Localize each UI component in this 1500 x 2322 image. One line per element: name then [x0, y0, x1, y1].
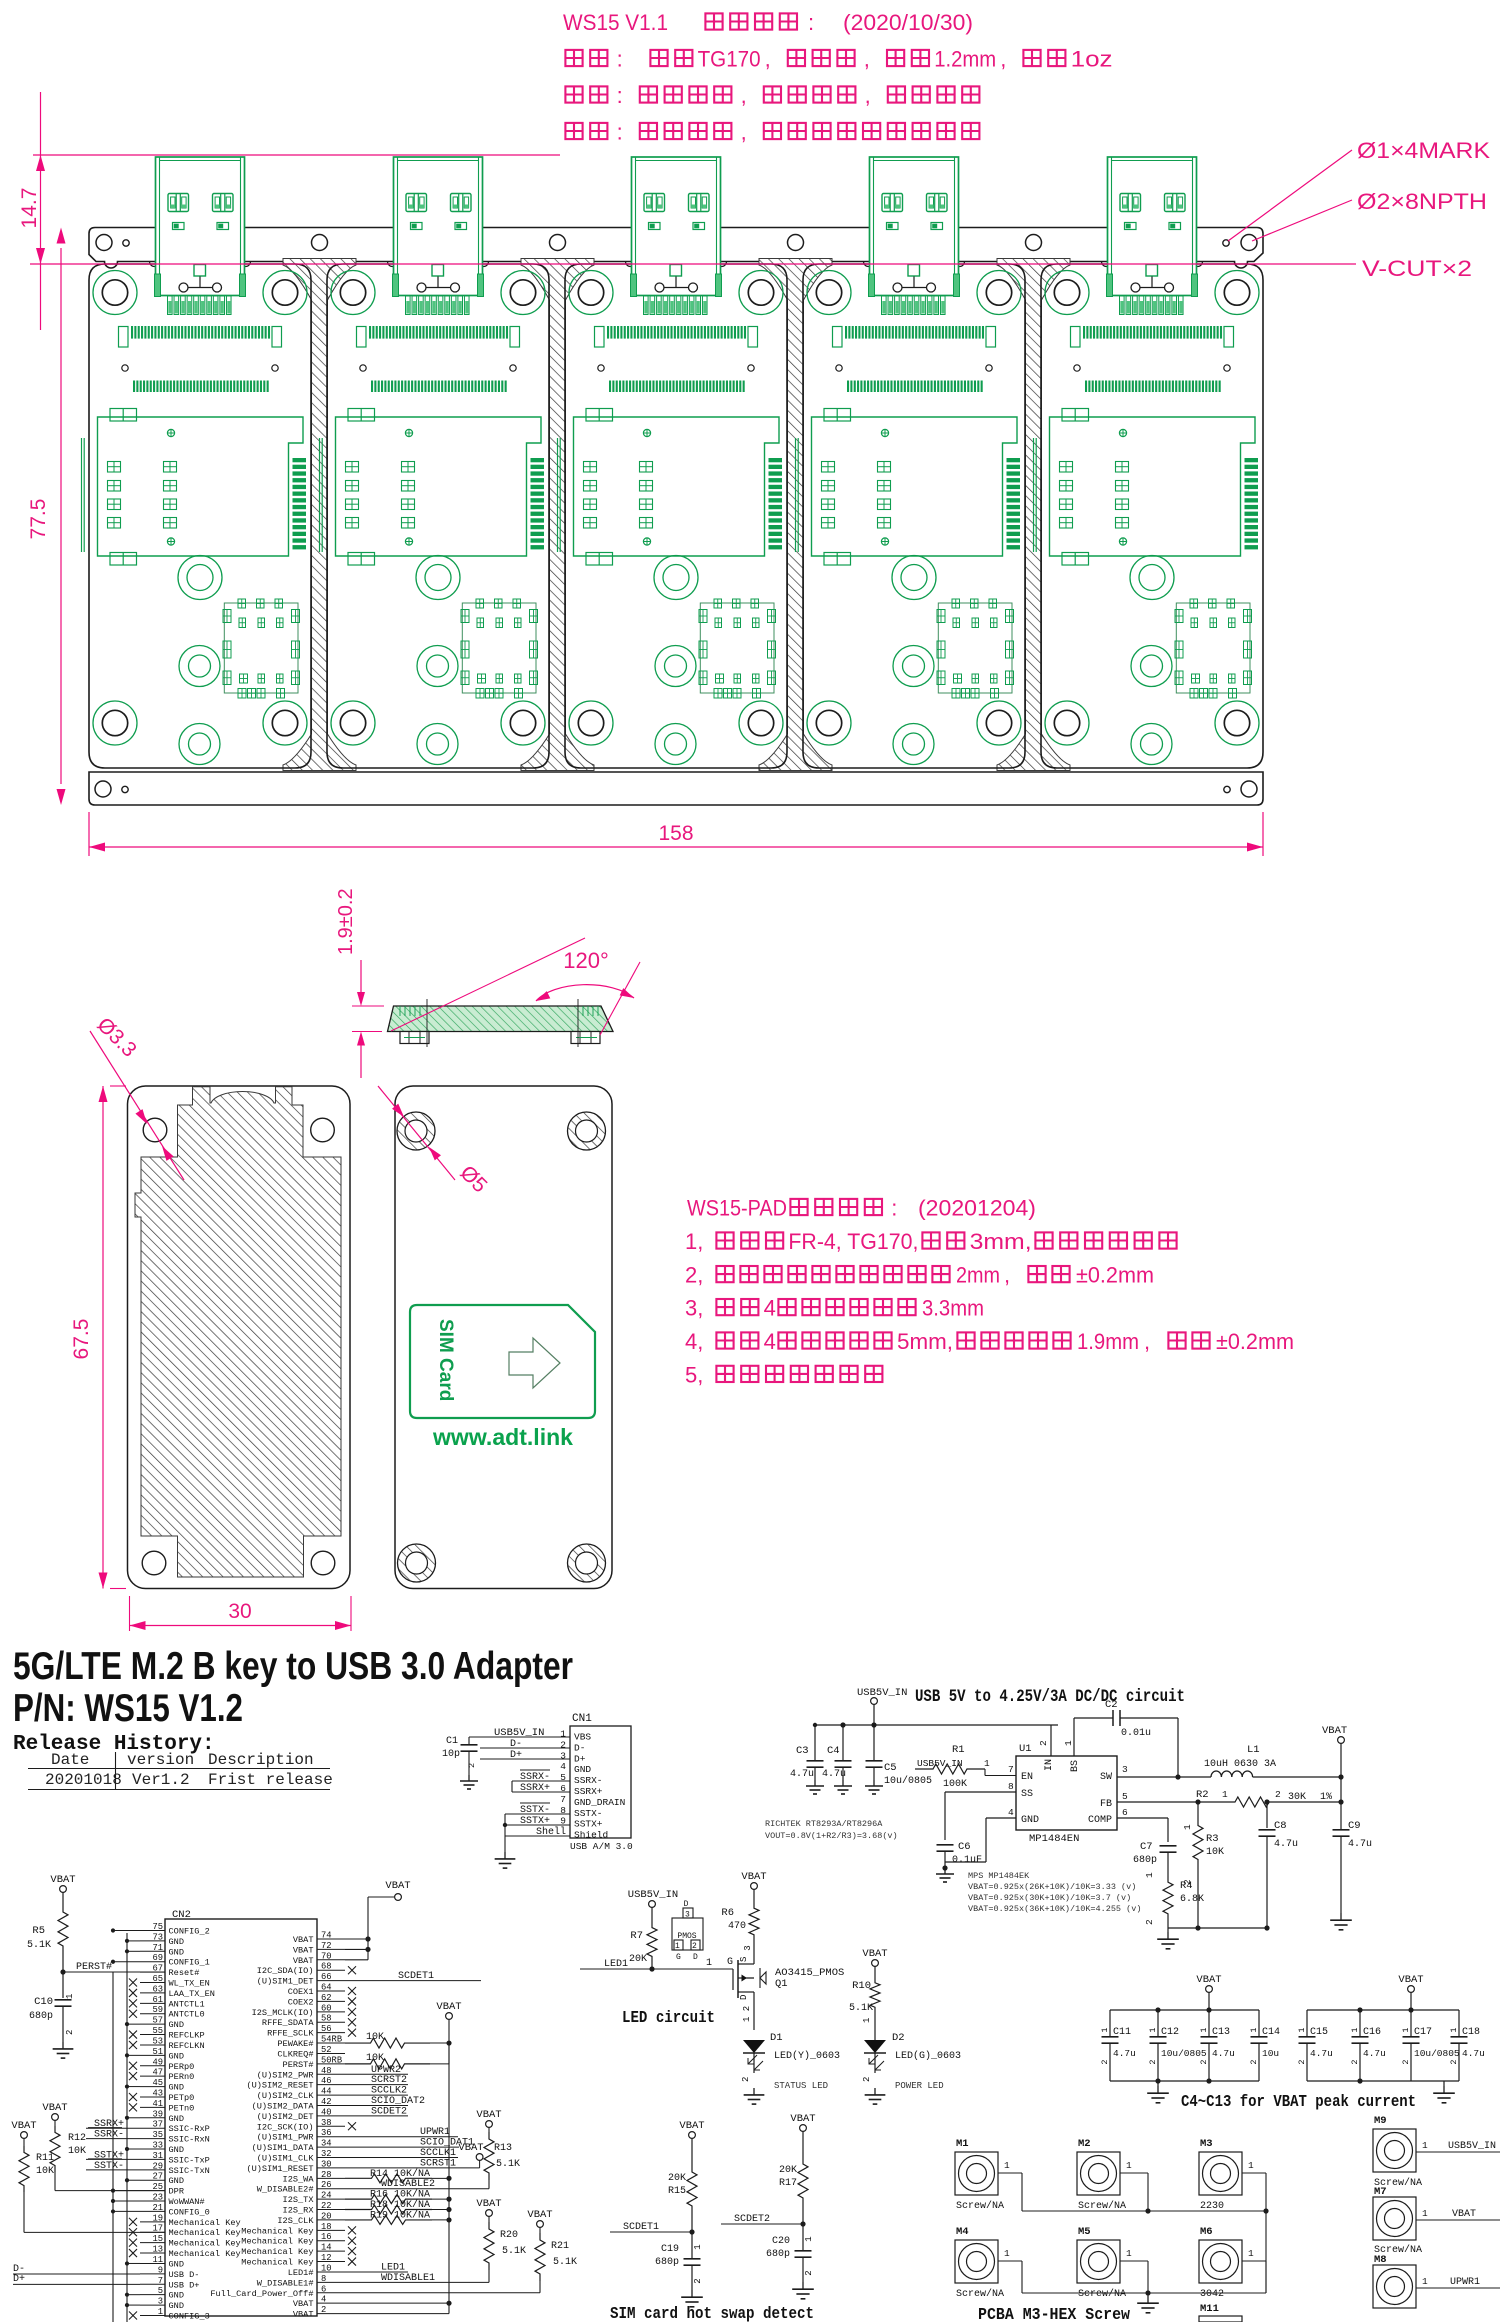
svg-text:,: ,	[1000, 47, 1006, 72]
svg-text:VOUT=0.8V(1+R2/R3)=3.68(v): VOUT=0.8V(1+R2/R3)=3.68(v)	[765, 1831, 898, 1841]
svg-text:USB A/M 3.0: USB A/M 3.0	[570, 1841, 633, 1852]
svg-text:C19: C19	[661, 2244, 679, 2255]
svg-text:3: 3	[1122, 1764, 1128, 1775]
svg-text:3: 3	[560, 1750, 566, 1761]
svg-text:COEX1: COEX1	[288, 1987, 314, 1997]
svg-text:ANTCTL0: ANTCTL0	[169, 2010, 205, 2020]
svg-text:7: 7	[560, 1794, 566, 1805]
svg-text:R20: R20	[500, 2230, 518, 2241]
svg-text:2,: 2,	[685, 1263, 703, 1288]
svg-text:VBAT=0.925x(36K+10K)/10K=4.255: VBAT=0.925x(36K+10K)/10K=4.255 (v)	[968, 1904, 1141, 1914]
svg-text:M9: M9	[1374, 2115, 1387, 2127]
svg-text:CONFIG_3: CONFIG_3	[169, 2311, 210, 2321]
svg-text:M11: M11	[1200, 2303, 1219, 2315]
svg-text:C20: C20	[772, 2236, 790, 2247]
svg-text:10u/0805: 10u/0805	[1414, 2048, 1460, 2059]
svg-text:30K: 30K	[1288, 1792, 1306, 1803]
svg-text:,: ,	[865, 83, 871, 108]
svg-text:MPS MP1484EK: MPS MP1484EK	[968, 1871, 1030, 1881]
svg-text:(U)SIM1_DET: (U)SIM1_DET	[257, 1977, 314, 1987]
svg-text:I2S_WA: I2S_WA	[283, 2174, 315, 2184]
svg-text:Screw/NA: Screw/NA	[956, 2288, 1004, 2300]
svg-text:IN: IN	[1044, 1759, 1055, 1771]
svg-text:SSRX-: SSRX-	[574, 1775, 603, 1786]
svg-text:±0.2mm: ±0.2mm	[1076, 1263, 1154, 1288]
svg-text:VBAT: VBAT	[50, 1874, 75, 1886]
svg-text:RFFE_SCLK: RFFE_SCLK	[267, 2029, 314, 2039]
svg-text:R17: R17	[779, 2178, 797, 2189]
svg-text:4.7u: 4.7u	[1274, 1839, 1298, 1850]
svg-text:M3: M3	[1200, 2138, 1213, 2150]
svg-text:VBAT: VBAT	[741, 1871, 766, 1883]
svg-text:I2C_SCK(IO): I2C_SCK(IO)	[257, 2122, 314, 2132]
svg-text:Screw/NA: Screw/NA	[1078, 2200, 1126, 2212]
svg-text:VBAT: VBAT	[679, 2120, 704, 2132]
svg-text:1: 1	[1100, 2027, 1110, 2032]
svg-text:680p: 680p	[766, 2249, 790, 2260]
svg-text:5mm,: 5mm,	[897, 1329, 953, 1354]
svg-text:CONFIG_0: CONFIG_0	[169, 2207, 210, 2217]
svg-text:U1: U1	[1019, 1743, 1032, 1755]
svg-text:8: 8	[1008, 1781, 1014, 1792]
svg-text:R15: R15	[668, 2186, 686, 2197]
svg-text:3042: 3042	[1200, 2289, 1224, 2300]
svg-text:PERST#: PERST#	[76, 1962, 112, 1973]
svg-text:GND: GND	[169, 1947, 184, 1957]
svg-text:4.7u: 4.7u	[1113, 2048, 1136, 2059]
svg-text:GND_DRAIN: GND_DRAIN	[574, 1797, 625, 1808]
svg-text:MP1484EN: MP1484EN	[1029, 1833, 1079, 1845]
svg-text:G: G	[727, 1957, 733, 1968]
svg-text:1: 1	[1350, 2027, 1360, 2032]
svg-text:version: version	[127, 1751, 194, 1769]
svg-text:4.7u: 4.7u	[1212, 2048, 1235, 2059]
svg-text:2: 2	[692, 1942, 697, 1951]
svg-text:PERp0: PERp0	[169, 2062, 195, 2072]
svg-text:4.7u: 4.7u	[1363, 2048, 1386, 2059]
svg-text:C16: C16	[1363, 2027, 1381, 2038]
svg-text:I2S_MCLK(IO): I2S_MCLK(IO)	[252, 2008, 314, 2018]
svg-text:67.5: 67.5	[70, 1319, 93, 1360]
svg-text:SSIC-RxN: SSIC-RxN	[169, 2135, 210, 2145]
svg-text:(U)SIM2_DATA: (U)SIM2_DATA	[252, 2101, 315, 2111]
svg-text:100K: 100K	[943, 1779, 967, 1790]
svg-text:1: 1	[1422, 2208, 1428, 2219]
svg-text:M2: M2	[1078, 2138, 1091, 2150]
svg-text:R13: R13	[494, 2143, 512, 2154]
svg-text:2: 2	[1144, 1919, 1155, 1925]
svg-text:D+: D+	[574, 1753, 586, 1764]
svg-text:R11: R11	[36, 2153, 54, 2164]
svg-text:5,: 5,	[685, 1362, 703, 1387]
svg-text:Mechanical Key: Mechanical Key	[241, 2247, 313, 2257]
svg-text:1: 1	[1401, 2027, 1411, 2032]
svg-text:GND: GND	[169, 2145, 184, 2155]
svg-text:2: 2	[1449, 2059, 1459, 2064]
svg-text:Frist release: Frist release	[208, 1771, 333, 1789]
svg-text:USB D-: USB D-	[169, 2270, 200, 2280]
svg-text:1.9mm: 1.9mm	[1077, 1329, 1139, 1354]
svg-text:WoWWAN#: WoWWAN#	[169, 2197, 205, 2207]
svg-text:VBAT: VBAT	[862, 1948, 887, 1960]
svg-text:CN2: CN2	[172, 1909, 191, 1921]
svg-text:VBAT: VBAT	[11, 2120, 36, 2132]
svg-text:1: 1	[1248, 2160, 1254, 2171]
svg-text:FR-4, TG170,: FR-4, TG170,	[788, 1229, 918, 1254]
svg-text:1,: 1,	[685, 1229, 703, 1254]
svg-text:R4: R4	[1180, 1880, 1193, 1892]
svg-text:SSIC-RxP: SSIC-RxP	[169, 2124, 210, 2134]
svg-text:M7: M7	[1374, 2186, 1387, 2198]
svg-text:C1: C1	[446, 1736, 458, 1747]
svg-text:10u: 10u	[1262, 2048, 1279, 2059]
svg-text:10K: 10K	[68, 2146, 86, 2157]
svg-text:1: 1	[1199, 2027, 1209, 2032]
svg-text:C2: C2	[1105, 1699, 1118, 1711]
svg-text:BS: BS	[1070, 1760, 1081, 1772]
svg-text:C18: C18	[1462, 2027, 1480, 2038]
svg-text:D+: D+	[13, 2274, 25, 2285]
svg-text:PCBA M3-HEX Screw: PCBA M3-HEX Screw	[978, 2306, 1131, 2322]
svg-text:3,: 3,	[685, 1296, 703, 1321]
svg-text:4: 4	[764, 1296, 776, 1321]
svg-text:1.2mm: 1.2mm	[934, 47, 996, 72]
svg-text:CONFIG_2: CONFIG_2	[169, 1927, 210, 1937]
svg-text:LED(G)_0603: LED(G)_0603	[895, 2050, 961, 2062]
svg-text:GND: GND	[169, 2051, 184, 2061]
svg-text:1: 1	[1063, 1740, 1074, 1746]
svg-text:2: 2	[467, 1763, 477, 1768]
svg-text:VBAT=0.925x(30K+10K)/10K=3.7 (: VBAT=0.925x(30K+10K)/10K=3.7 (v)	[968, 1893, 1131, 1903]
svg-text:FB: FB	[1100, 1799, 1112, 1810]
svg-text:WL_TX_EN: WL_TX_EN	[169, 1979, 210, 1989]
svg-text:PEWAKE#: PEWAKE#	[277, 2039, 313, 2049]
svg-text:USB5V_IN: USB5V_IN	[857, 1687, 907, 1699]
svg-text:Mechanical Key: Mechanical Key	[241, 2237, 313, 2247]
svg-text:I2S_TX: I2S_TX	[283, 2195, 314, 2205]
svg-text:5.1K: 5.1K	[553, 2257, 577, 2268]
svg-text:SSTX-: SSTX-	[574, 1808, 603, 1819]
svg-text:3: 3	[743, 1945, 753, 1950]
svg-text:1.9±0.2: 1.9±0.2	[335, 888, 357, 955]
svg-text:SSIC-TxN: SSIC-TxN	[169, 2166, 210, 2176]
svg-text:(U)SIM2_PWR: (U)SIM2_PWR	[257, 2070, 314, 2080]
svg-text:SSRX+: SSRX+	[574, 1786, 603, 1797]
svg-text:I2C_SDA(IO): I2C_SDA(IO)	[257, 1966, 314, 1976]
svg-text:C14: C14	[1262, 2027, 1280, 2038]
svg-text:LED(Y)_0603: LED(Y)_0603	[774, 2050, 840, 2062]
svg-text:D1: D1	[770, 2032, 783, 2044]
svg-text:5.1K: 5.1K	[27, 1940, 51, 1951]
svg-text:2: 2	[1038, 1740, 1049, 1746]
svg-text:3.3mm: 3.3mm	[922, 1296, 984, 1321]
svg-text:D: D	[684, 1900, 689, 1909]
svg-text:4.7u: 4.7u	[1310, 2048, 1333, 2059]
svg-text:VBAT: VBAT	[42, 2102, 67, 2114]
svg-text:4: 4	[1008, 1807, 1014, 1818]
svg-text:(20201204): (20201204)	[918, 1196, 1036, 1221]
svg-text:1: 1	[1148, 2027, 1158, 2032]
svg-text:VBS: VBS	[574, 1732, 591, 1743]
svg-text:PERST#: PERST#	[283, 2060, 314, 2070]
svg-text:Mechanical Key: Mechanical Key	[169, 2218, 241, 2228]
svg-text:Ø1×4MARK: Ø1×4MARK	[1357, 138, 1490, 163]
svg-text:20201018: 20201018	[45, 1771, 122, 1789]
svg-text:20K: 20K	[779, 2165, 797, 2176]
svg-text:680p: 680p	[655, 2257, 679, 2268]
svg-text:2: 2	[65, 2030, 75, 2035]
svg-text:1: 1	[1004, 2160, 1010, 2171]
svg-text::: :	[808, 10, 814, 35]
svg-text::: :	[617, 47, 623, 72]
svg-text:USB5V_IN: USB5V_IN	[1448, 2141, 1496, 2152]
svg-text:D: D	[739, 1995, 749, 2000]
svg-text:C15: C15	[1310, 2027, 1328, 2038]
svg-text:(U)SIM1_CLK: (U)SIM1_CLK	[257, 2154, 315, 2164]
svg-text:1: 1	[984, 1758, 990, 1769]
svg-text:Mechanical Key: Mechanical Key	[241, 2258, 313, 2268]
svg-text:1 2: 1 2	[742, 2006, 752, 2022]
svg-text:2: 2	[1148, 2059, 1158, 2064]
svg-text:M8: M8	[1374, 2254, 1387, 2266]
svg-text:PETn0: PETn0	[169, 2103, 195, 2113]
svg-text:GND: GND	[169, 2020, 184, 2030]
svg-text:10uH 0630 3A: 10uH 0630 3A	[1204, 1759, 1276, 1770]
svg-text:Date: Date	[51, 1751, 89, 1769]
svg-text:120°: 120°	[563, 948, 609, 973]
svg-text:C10: C10	[34, 1996, 53, 2008]
svg-text:VBAT: VBAT	[293, 2310, 314, 2320]
svg-text:(U)SIM1_PWR: (U)SIM1_PWR	[257, 2133, 314, 2143]
svg-text:6.8K: 6.8K	[1180, 1894, 1204, 1905]
svg-text:G: G	[676, 1953, 681, 1962]
svg-text:158: 158	[658, 822, 693, 845]
svg-text:POWER LED: POWER LED	[895, 2081, 944, 2091]
svg-text:1: 1	[1144, 1872, 1155, 1878]
svg-text:SW: SW	[1100, 1772, 1112, 1783]
svg-text:1: 1	[862, 2018, 872, 2023]
svg-text:STATUS LED: STATUS LED	[774, 2081, 828, 2091]
svg-text:Mechanical Key: Mechanical Key	[169, 2239, 241, 2249]
svg-text:1: 1	[1248, 2248, 1254, 2259]
svg-text:1oz: 1oz	[1071, 47, 1113, 72]
svg-text:5.1K: 5.1K	[849, 2003, 873, 2014]
svg-text:(U)SIM2_CLK: (U)SIM2_CLK	[257, 2091, 315, 2101]
svg-text:USB5V_IN: USB5V_IN	[917, 1758, 963, 1769]
svg-text:1%: 1%	[1320, 1792, 1332, 1803]
svg-text:5G/LTE M.2 B key to USB 3.0 Ad: 5G/LTE M.2 B key to USB 3.0 Adapter	[13, 1645, 573, 1688]
svg-text:2230: 2230	[1200, 2201, 1224, 2212]
svg-text:VBAT: VBAT	[458, 2142, 483, 2154]
svg-text:GND: GND	[1021, 1815, 1039, 1826]
svg-text:L1: L1	[1247, 1744, 1260, 1756]
svg-text:M6: M6	[1200, 2226, 1213, 2238]
svg-text:1: 1	[1126, 2160, 1132, 2171]
svg-text:1: 1	[65, 1994, 75, 1999]
svg-text:4.7u: 4.7u	[1348, 1839, 1372, 1850]
svg-text:(U)SIM1_DATA: (U)SIM1_DATA	[252, 2143, 315, 2153]
svg-text:30: 30	[228, 1600, 251, 1623]
svg-text:1: 1	[1126, 2248, 1132, 2259]
svg-text:10K: 10K	[1206, 1847, 1224, 1858]
svg-text:GND: GND	[169, 1937, 184, 1947]
svg-text:M4: M4	[956, 2226, 969, 2238]
svg-text:DPR: DPR	[169, 2187, 184, 2197]
svg-text:2: 2	[1249, 2059, 1259, 2064]
svg-text:C5: C5	[884, 1762, 897, 1774]
svg-text:,: ,	[741, 120, 747, 145]
svg-text:GND: GND	[169, 2291, 184, 2301]
svg-text:SS: SS	[1021, 1789, 1033, 1800]
svg-text:,: ,	[864, 47, 870, 72]
svg-text::: :	[617, 120, 623, 145]
svg-text:1: 1	[675, 1942, 680, 1951]
svg-text:VBAT: VBAT	[1196, 1974, 1221, 1986]
svg-text:D2: D2	[892, 2032, 905, 2044]
svg-text:,: ,	[741, 83, 747, 108]
svg-text:VBAT: VBAT	[293, 1956, 314, 1966]
svg-text:LED1: LED1	[604, 1959, 628, 1970]
svg-text:5: 5	[1122, 1791, 1128, 1802]
svg-text:CONFIG_1: CONFIG_1	[169, 1958, 210, 1968]
svg-text:RICHTEK RT8293A/RT8296A: RICHTEK RT8293A/RT8296A	[765, 1819, 883, 1829]
svg-text:COEX2: COEX2	[288, 1997, 314, 2007]
svg-text:2: 2	[560, 1739, 566, 1750]
svg-text:1: 1	[1422, 2276, 1428, 2287]
svg-text:SSTX+: SSTX+	[574, 1819, 603, 1830]
svg-text:Mechanical Key: Mechanical Key	[169, 2249, 241, 2259]
svg-text:4.7u: 4.7u	[790, 1769, 814, 1780]
svg-text:CLKREQ#: CLKREQ#	[277, 2049, 313, 2059]
svg-text:GND: GND	[169, 2114, 184, 2124]
svg-text:2: 2	[804, 2270, 814, 2275]
svg-text:SSIC-TxP: SSIC-TxP	[169, 2155, 210, 2165]
svg-text:1: 1	[693, 2244, 703, 2249]
svg-text:77.5: 77.5	[27, 499, 50, 540]
svg-text:D: D	[693, 1953, 698, 1962]
svg-text:4.7u: 4.7u	[1462, 2048, 1485, 2059]
svg-text:2: 2	[741, 2077, 751, 2082]
svg-text:Mechanical Key: Mechanical Key	[241, 2226, 313, 2236]
svg-text:LED circuit: LED circuit	[622, 2009, 715, 2028]
svg-text:C13: C13	[1212, 2027, 1230, 2038]
svg-text:2: 2	[1275, 1789, 1281, 1800]
svg-text:10p: 10p	[442, 1749, 460, 1760]
svg-text:TG170: TG170	[698, 47, 761, 72]
svg-text:WS15 V1.1: WS15 V1.1	[563, 10, 668, 35]
svg-text:,: ,	[765, 47, 771, 72]
svg-text:470: 470	[728, 1921, 746, 1932]
svg-text:4: 4	[560, 1761, 566, 1772]
svg-text:20K: 20K	[668, 2173, 686, 2184]
svg-text:(U)SIM2_RESET: (U)SIM2_RESET	[246, 2081, 313, 2091]
svg-text:VBAT: VBAT	[293, 1935, 314, 1945]
svg-text:1: 1	[1422, 2140, 1428, 2151]
svg-text:1: 1	[1004, 2248, 1010, 2259]
svg-text:Screw/NA: Screw/NA	[956, 2200, 1004, 2212]
svg-text:5.1K: 5.1K	[502, 2246, 526, 2257]
svg-text:10u/0805: 10u/0805	[884, 1775, 932, 1787]
svg-text:PERn0: PERn0	[169, 2072, 195, 2082]
svg-text:1: 1	[1249, 2027, 1259, 2032]
svg-text:VBAT: VBAT	[385, 1880, 410, 1892]
svg-text:SIM card hot swap detect: SIM card hot swap detect	[610, 2305, 814, 2322]
svg-text:S: S	[739, 1957, 749, 1962]
svg-text:3: 3	[685, 1911, 690, 1920]
svg-text:VBAT: VBAT	[293, 2299, 314, 2309]
svg-text:ANTCTL1: ANTCTL1	[169, 1999, 205, 2009]
svg-text:LAA_TX_EN: LAA_TX_EN	[169, 1989, 215, 1999]
svg-text:7: 7	[1008, 1764, 1014, 1775]
svg-text:2: 2	[1199, 2059, 1209, 2064]
svg-text:V-CUT×2: V-CUT×2	[1362, 256, 1472, 281]
svg-text:GND: GND	[169, 2259, 184, 2269]
svg-text:CN1: CN1	[572, 1713, 592, 1725]
svg-text:VBAT: VBAT	[436, 2001, 461, 2013]
svg-text:C4: C4	[827, 1745, 840, 1757]
svg-text:1: 1	[560, 1729, 566, 1740]
svg-text:2mm: 2mm	[956, 1263, 1000, 1288]
svg-text:1: 1	[1222, 1789, 1228, 1800]
svg-text:C4~C13 for VBAT peak current: C4~C13 for VBAT peak current	[1181, 2093, 1416, 2112]
svg-text:M5: M5	[1078, 2226, 1091, 2238]
svg-text:Mechanical Key: Mechanical Key	[169, 2228, 241, 2238]
svg-text:5.1K: 5.1K	[496, 2159, 520, 2170]
svg-text:2: 2	[1401, 2059, 1411, 2064]
svg-text:2: 2	[1350, 2059, 1360, 2064]
svg-text:(2020/10/30): (2020/10/30)	[843, 10, 973, 35]
svg-text:1: 1	[1449, 2027, 1459, 2032]
svg-text:Shield: Shield	[574, 1830, 608, 1841]
svg-text:2: 2	[862, 2077, 872, 2082]
svg-text:Ver1.2: Ver1.2	[132, 1771, 190, 1789]
svg-text:C6: C6	[958, 1841, 971, 1853]
svg-text:C12: C12	[1161, 2027, 1179, 2038]
svg-text:www.adt.link: www.adt.link	[432, 1424, 573, 1450]
svg-text:REFCLKN: REFCLKN	[169, 2041, 205, 2051]
svg-text:W_DISABLE2#: W_DISABLE2#	[257, 2185, 314, 2195]
svg-text:USB 5V to 4.25V/3A DC/DC circu: USB 5V to 4.25V/3A DC/DC circuit	[915, 1687, 1185, 1707]
svg-text:1: 1	[804, 2236, 814, 2241]
svg-text:D-: D-	[574, 1742, 585, 1753]
svg-text::: :	[891, 1196, 897, 1221]
svg-text:Reset#: Reset#	[169, 1968, 200, 1978]
svg-text:SIM Card: SIM Card	[435, 1319, 456, 1401]
svg-text:WS15-PAD: WS15-PAD	[687, 1196, 787, 1221]
svg-text:USB D+: USB D+	[169, 2280, 200, 2290]
svg-text:VBAT: VBAT	[293, 1945, 314, 1955]
svg-text:COMP: COMP	[1088, 1815, 1112, 1826]
svg-text:LED1#: LED1#	[288, 2268, 314, 2278]
svg-text:R21: R21	[551, 2241, 569, 2252]
svg-text:Ø2×8NPTH: Ø2×8NPTH	[1357, 189, 1487, 214]
svg-text:VBAT: VBAT	[1322, 1725, 1347, 1737]
svg-text:SCDET1: SCDET1	[623, 2222, 659, 2233]
svg-text:0.1uF: 0.1uF	[952, 1855, 982, 1866]
svg-text:20K: 20K	[629, 1954, 647, 1965]
svg-text:UPWR1: UPWR1	[1450, 2277, 1480, 2288]
svg-text:±0.2mm: ±0.2mm	[1216, 1329, 1294, 1354]
svg-text:W_DISABLE1#: W_DISABLE1#	[257, 2278, 314, 2288]
svg-text:2: 2	[1297, 2059, 1307, 2064]
svg-text:6: 6	[1122, 1807, 1128, 1818]
svg-text:R6: R6	[721, 1907, 734, 1919]
svg-text:R2: R2	[1196, 1789, 1209, 1801]
svg-text:SCDET2: SCDET2	[734, 2214, 770, 2225]
svg-text:VBAT=0.925x(26K+10K)/10K=3.33: VBAT=0.925x(26K+10K)/10K=3.33 (v)	[968, 1882, 1136, 1892]
svg-text:M1: M1	[956, 2138, 969, 2150]
svg-text:R5: R5	[32, 1925, 45, 1937]
